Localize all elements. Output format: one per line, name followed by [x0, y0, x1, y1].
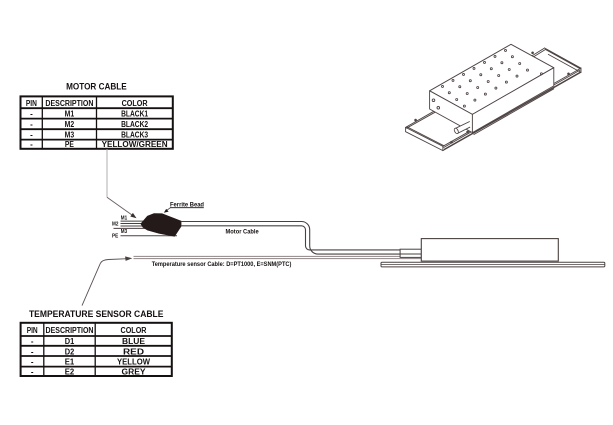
- svg-text:DESCRIPTION: DESCRIPTION: [46, 326, 94, 335]
- svg-text:Motor Cable: Motor Cable: [226, 228, 259, 235]
- svg-text:DESCRIPTION: DESCRIPTION: [45, 99, 93, 108]
- svg-text:YELLOW: YELLOW: [117, 358, 150, 367]
- svg-text:-: -: [30, 140, 33, 149]
- svg-text:M3: M3: [65, 131, 75, 140]
- svg-text:PE: PE: [112, 233, 119, 239]
- svg-text:BLACK2: BLACK2: [121, 120, 148, 129]
- svg-text:M2: M2: [112, 222, 118, 228]
- svg-text:BLACK3: BLACK3: [121, 131, 148, 140]
- svg-text:-: -: [30, 120, 33, 129]
- svg-text:YELLOW/GREEN: YELLOW/GREEN: [102, 140, 168, 149]
- svg-text:-: -: [31, 347, 34, 356]
- svg-text:GREY: GREY: [122, 367, 147, 376]
- svg-text:-: -: [30, 109, 33, 118]
- svg-text:PIN: PIN: [27, 326, 38, 335]
- svg-text:D1: D1: [65, 337, 75, 346]
- svg-text:RED: RED: [123, 347, 144, 356]
- svg-text:PIN: PIN: [26, 99, 37, 108]
- svg-text:COLOR: COLOR: [121, 326, 147, 335]
- svg-text:COLOR: COLOR: [122, 99, 148, 108]
- svg-text:E2: E2: [65, 367, 75, 376]
- svg-text:BLUE: BLUE: [122, 337, 146, 346]
- svg-text:-: -: [31, 337, 34, 346]
- svg-text:M1: M1: [65, 109, 75, 118]
- svg-text:M2: M2: [65, 120, 75, 129]
- svg-text:PE: PE: [65, 140, 75, 149]
- svg-text:M3: M3: [121, 229, 127, 235]
- svg-text:-: -: [31, 367, 34, 376]
- svg-text:-: -: [31, 358, 34, 367]
- svg-text:MOTOR CABLE: MOTOR CABLE: [66, 81, 127, 92]
- svg-text:E1: E1: [65, 358, 75, 367]
- svg-text:-: -: [30, 131, 33, 140]
- svg-text:TEMPERATURE SENSOR CABLE: TEMPERATURE SENSOR CABLE: [29, 309, 164, 320]
- svg-text:D2: D2: [65, 347, 75, 356]
- svg-text:Temperature sensor Cable: D=PT: Temperature sensor Cable: D=PT1000, E=SN…: [152, 261, 292, 268]
- svg-text:BLACK1: BLACK1: [121, 109, 148, 118]
